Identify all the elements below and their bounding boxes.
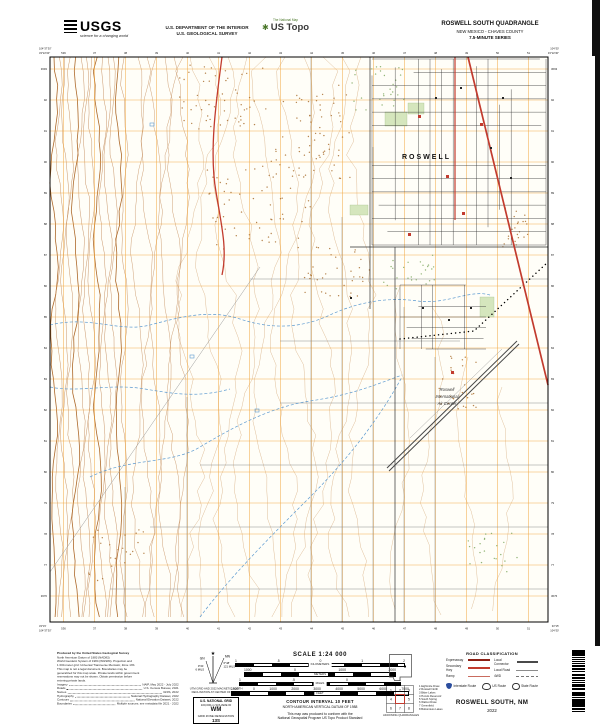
svg-text:88: 88: [551, 222, 555, 226]
svg-text:78: 78: [551, 532, 555, 536]
svg-text:79: 79: [551, 501, 555, 505]
svg-text:79: 79: [44, 501, 48, 505]
svg-text:88: 88: [44, 222, 48, 226]
corner-tr-lon: 104°30': [550, 47, 559, 51]
road-class-item-fourwd: 4WD: [494, 674, 538, 678]
department-heading: U.S. DEPARTMENT OF THE INTERIOR U.S. GEO…: [132, 25, 282, 37]
svg-text:6: 6: [390, 706, 392, 710]
usgs-wave-icon: [64, 20, 77, 33]
svg-text:39: 39: [155, 51, 159, 55]
quadrangle-title-block: ROSWELL SOUTH QUADRANGLE NEW MEXICO - CH…: [420, 20, 560, 42]
svg-text:37: 37: [93, 51, 97, 55]
svg-text:86: 86: [551, 284, 555, 288]
svg-text:92: 92: [44, 98, 48, 102]
road-classification-legend: ROAD CLASSIFICATION ExpresswaySecondary …: [446, 651, 538, 690]
svg-text:46: 46: [372, 51, 376, 55]
svg-text:8: 8: [408, 706, 410, 710]
airport-label: Air Center: [437, 401, 457, 406]
svg-text:50: 50: [496, 51, 500, 55]
svg-text:536: 536: [61, 51, 66, 55]
route-shield-row: Interstate RouteUS RouteState Route: [446, 683, 538, 691]
svg-text:90: 90: [551, 160, 555, 164]
dept-line2: U.S. GEOLOGICAL SURVEY: [132, 31, 282, 37]
svg-text:80: 80: [551, 470, 555, 474]
road-class-item-ramp: Ramp: [446, 674, 490, 678]
svg-text:82: 82: [551, 408, 555, 412]
svg-text:47: 47: [403, 51, 407, 55]
map-canvas: ROSWELLRoswellInternationalAir Center536…: [38, 45, 560, 634]
svg-text:51: 51: [527, 627, 531, 631]
road-class-item-secondary: Secondary Hwy: [446, 664, 490, 672]
scale-bar-kilometers: 1.5012KILOMETERS: [235, 659, 405, 667]
scale-bar-miles: 1.501MILES: [239, 678, 401, 686]
svg-text:84: 84: [551, 346, 555, 350]
svg-text:77: 77: [44, 563, 48, 567]
svg-text:90: 90: [44, 160, 48, 164]
svg-text:38: 38: [124, 627, 128, 631]
credits-sources: ImageryNAIP, May 2022 - July 2022RoadsU.…: [57, 683, 179, 706]
svg-text:43: 43: [279, 51, 283, 55]
svg-text:536: 536: [61, 627, 66, 631]
road-class-item-local: Local Road: [494, 668, 538, 672]
svg-text:45: 45: [341, 627, 345, 631]
corner-tr-lat: 33°22'30": [548, 51, 559, 55]
airport-label: International: [435, 394, 459, 399]
svg-text:51: 51: [527, 51, 531, 55]
svg-text:38: 38: [124, 51, 128, 55]
corner-br-lat: 33°15': [552, 624, 560, 628]
usgs-logo: USGS science for a changing world: [64, 18, 128, 38]
svg-text:91: 91: [44, 129, 48, 133]
road-class-item-expressway: Expressway: [446, 658, 490, 662]
svg-text:40: 40: [186, 627, 190, 631]
interstate-shield-icon: [446, 683, 452, 689]
ustopo-flower-icon: ✱: [262, 24, 269, 32]
usgs-tagline: science for a changing world: [80, 34, 128, 38]
sheet-title: ROSWELL SOUTH, NM: [446, 699, 538, 706]
svg-text:48: 48: [434, 627, 438, 631]
svg-text:86: 86: [44, 284, 48, 288]
svg-text:41: 41: [217, 51, 221, 55]
usgs-topo-sheet: USGS science for a changing world U.S. D…: [0, 0, 600, 725]
svg-text:49: 49: [465, 51, 469, 55]
svg-text:39: 39: [155, 627, 159, 631]
svg-text:44: 44: [310, 627, 314, 631]
svg-text:87: 87: [44, 253, 48, 257]
svg-text:85: 85: [551, 315, 555, 319]
svg-text:37: 37: [93, 627, 97, 631]
svg-text:83: 83: [551, 377, 555, 381]
city-label: ROSWELL: [402, 154, 451, 161]
scale-heading: SCALE 1:24 000: [228, 652, 412, 658]
svg-text:5: 5: [408, 697, 410, 701]
svg-text:43: 43: [279, 627, 283, 631]
credits-lines: North American Datum of 1983 (NAD83)Worl…: [57, 656, 179, 683]
road-class-item-connector: Local Connector: [494, 658, 538, 666]
svg-text:89: 89: [44, 191, 48, 195]
svg-text:77: 77: [551, 563, 555, 567]
svg-text:91: 91: [551, 129, 555, 133]
svg-text:41: 41: [217, 627, 221, 631]
svg-text:46: 46: [372, 627, 376, 631]
scale-bar-meters: 1000010002000METERS: [244, 668, 396, 676]
state-locator-map: [388, 653, 414, 683]
svg-text:3676: 3676: [41, 594, 48, 598]
svg-text:78: 78: [44, 532, 48, 536]
svg-text:83: 83: [44, 377, 48, 381]
road-class-left-column: ExpresswaySecondary HwyRamp: [446, 658, 490, 681]
quadrangle-series: 7.5-MINUTE SERIES: [420, 35, 560, 42]
sheet-title-block: ROSWELL SOUTH, NM 2022: [446, 699, 538, 713]
svg-text:89: 89: [551, 191, 555, 195]
production-credits: Produced by the United States Geological…: [57, 652, 179, 722]
credits-source-row: BoundariesMultiple sources; see metadata…: [57, 702, 179, 706]
usgs-logo-text: USGS: [80, 18, 122, 34]
scan-edge-strip-top: [592, 0, 600, 56]
grid-north-angle: 0°21': [198, 664, 205, 668]
svg-text:82: 82: [44, 408, 48, 412]
this-quad-cell: [396, 695, 405, 704]
svg-text:80: 80: [44, 470, 48, 474]
svg-text:48: 48: [434, 51, 438, 55]
route-legend-interstate-shield: Interstate Route: [446, 683, 476, 691]
svg-text:44: 44: [310, 51, 314, 55]
svg-text:84: 84: [44, 346, 48, 350]
route-legend-us-route-shield: US Route: [482, 683, 506, 691]
quad-location-dot: [404, 665, 406, 667]
route-legend-state-route-circle: State Route: [512, 683, 538, 691]
svg-text:47: 47: [403, 627, 407, 631]
ustopo-name: US Topo: [271, 22, 309, 33]
svg-text:81: 81: [44, 439, 48, 443]
barcode: [572, 650, 585, 714]
grid-north-label: GN: [200, 657, 205, 661]
svg-text:87: 87: [551, 253, 555, 257]
svg-text:92: 92: [551, 98, 555, 102]
road-class-right-column: Local ConnectorLocal Road4WD: [494, 658, 538, 681]
quadrangle-title: ROSWELL SOUTH QUADRANGLE: [420, 20, 560, 29]
svg-text:85: 85: [44, 315, 48, 319]
scan-edge-strip: [595, 56, 600, 646]
corner-bl-lat: 33°15': [39, 624, 47, 628]
svg-text:1: 1: [390, 688, 392, 692]
svg-text:40: 40: [186, 51, 190, 55]
us-route-shield-icon: [482, 683, 491, 691]
svg-text:2: 2: [399, 688, 401, 692]
svg-text:3676: 3676: [551, 594, 558, 598]
adjoining-quadrangles-diagram: 12345678: [384, 683, 416, 715]
svg-text:50: 50: [496, 627, 500, 631]
svg-text:7: 7: [399, 706, 401, 710]
svg-text:42: 42: [248, 627, 252, 631]
svg-text:3693: 3693: [551, 67, 558, 71]
svg-text:42: 42: [248, 51, 252, 55]
corner-tl-lat: 33°22'30": [39, 51, 50, 55]
sheet-year: 2022: [446, 708, 538, 713]
svg-text:3693: 3693: [41, 67, 48, 71]
state-route-circle-icon: [512, 683, 520, 691]
svg-text:81: 81: [551, 439, 555, 443]
airport-label: Roswell: [440, 387, 456, 392]
svg-text:4: 4: [390, 697, 392, 701]
svg-text:49: 49: [465, 627, 469, 631]
corner-br-lon: 104°30': [550, 629, 559, 633]
svg-text:45: 45: [341, 51, 345, 55]
corner-bl-lon: 104°37'30": [39, 629, 52, 633]
svg-text:3: 3: [408, 688, 410, 692]
scale-bar-feet: 100001000200030004000500060007000FEET: [231, 687, 409, 695]
corner-tl-lon: 104°37'30": [39, 47, 52, 51]
grid-north-mils: 6 MILS: [195, 667, 204, 671]
ustopo-logo: The National Map ✱ US Topo: [262, 18, 309, 33]
road-classification-title: ROAD CLASSIFICATION: [446, 651, 538, 656]
